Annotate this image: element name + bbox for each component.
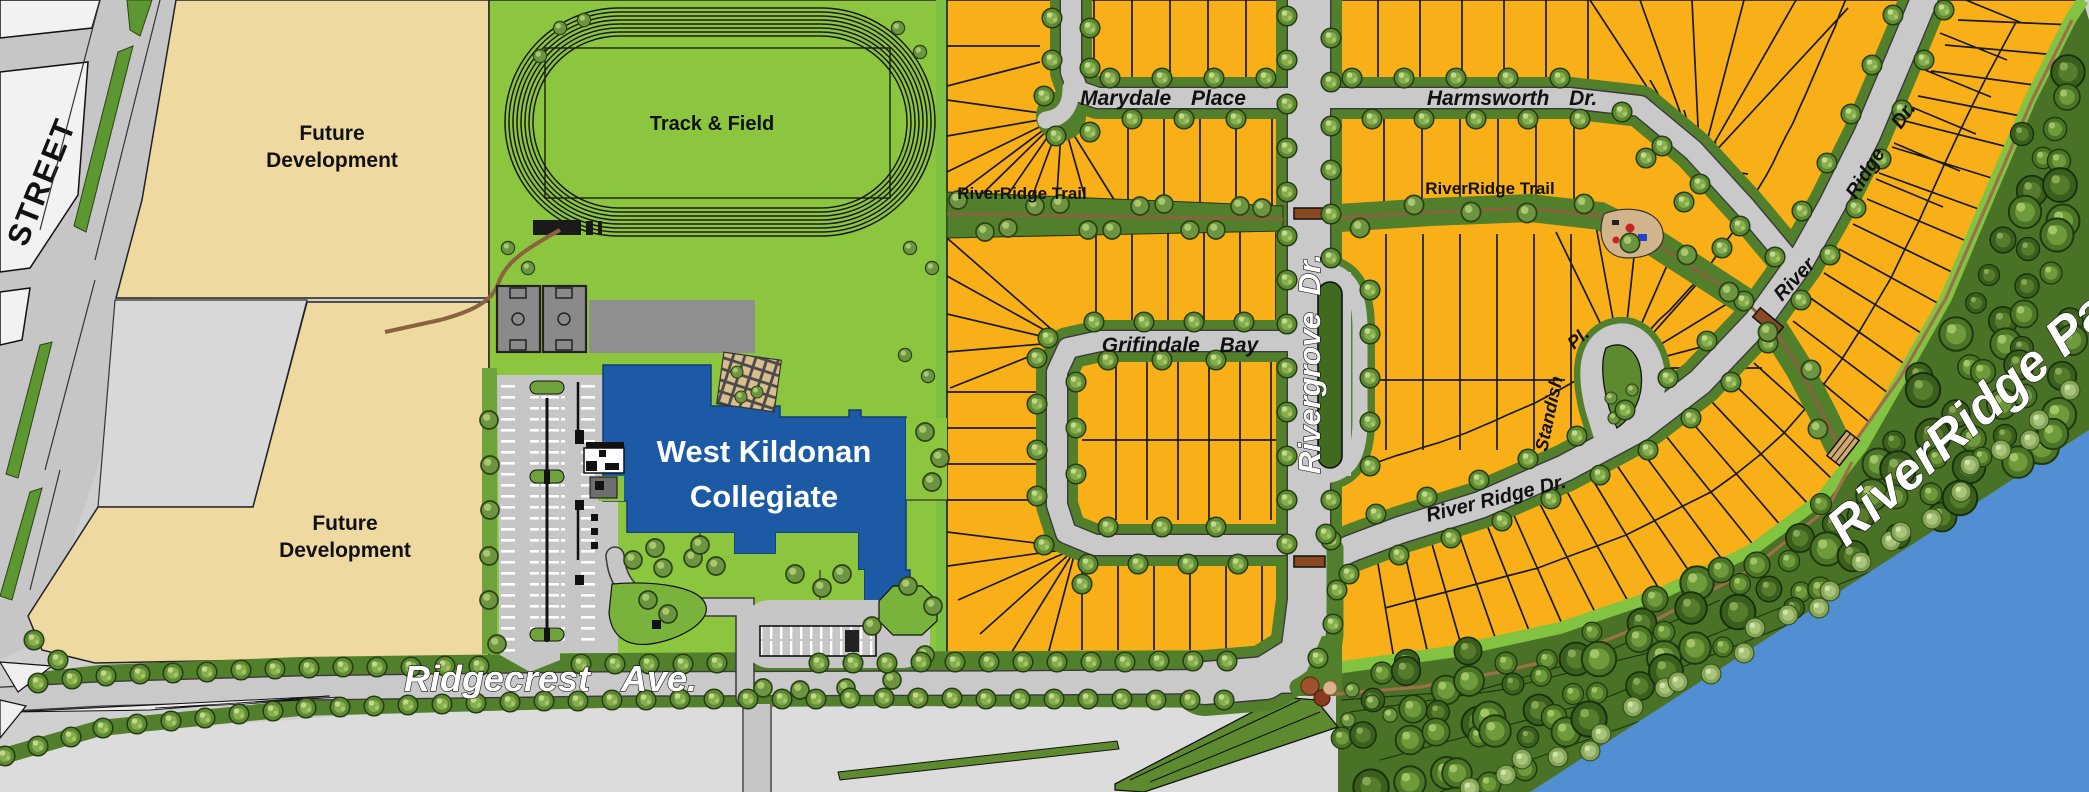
svg-text:Development: Development [266, 149, 398, 172]
svg-text:Collegiate: Collegiate [690, 479, 838, 514]
svg-text:Development: Development [279, 539, 411, 562]
svg-text:RiverRidge Trail: RiverRidge Trail [957, 184, 1086, 203]
svg-text:Ridgecrest: Ridgecrest [404, 658, 592, 699]
svg-text:RiverRidge Trail: RiverRidge Trail [1425, 179, 1554, 198]
svg-text:West Kildonan: West Kildonan [657, 434, 872, 469]
svg-text:Harmsworth Dr.: Harmsworth Dr. [1427, 87, 1597, 110]
svg-text:Rivergrove Dr.: Rivergrove Dr. [1292, 254, 1327, 474]
svg-text:Grifindale Bay: Grifindale Bay [1102, 334, 1260, 357]
svg-text:Track & Field: Track & Field [650, 113, 775, 135]
svg-text:Marydale Place: Marydale Place [1080, 87, 1246, 110]
svg-text:Ave.: Ave. [620, 658, 697, 699]
svg-text:Future: Future [299, 122, 364, 145]
svg-text:Future: Future [312, 512, 377, 535]
